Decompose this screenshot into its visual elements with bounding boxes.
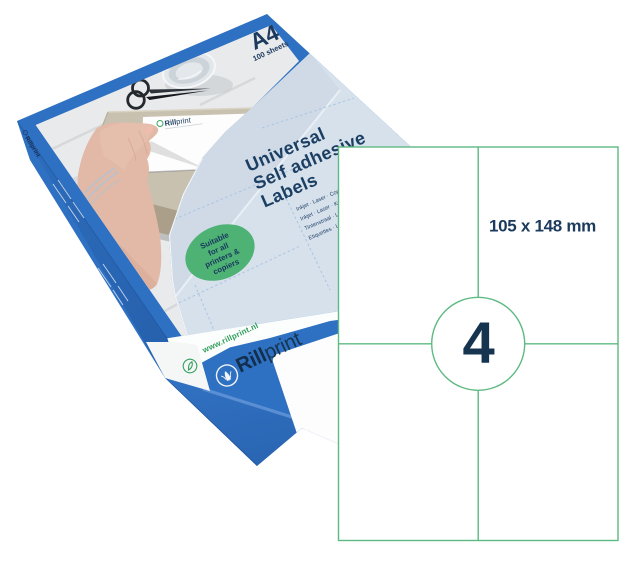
svg-text:4: 4: [462, 311, 494, 376]
svg-text:105 x 148 mm: 105 x 148 mm: [489, 217, 596, 236]
